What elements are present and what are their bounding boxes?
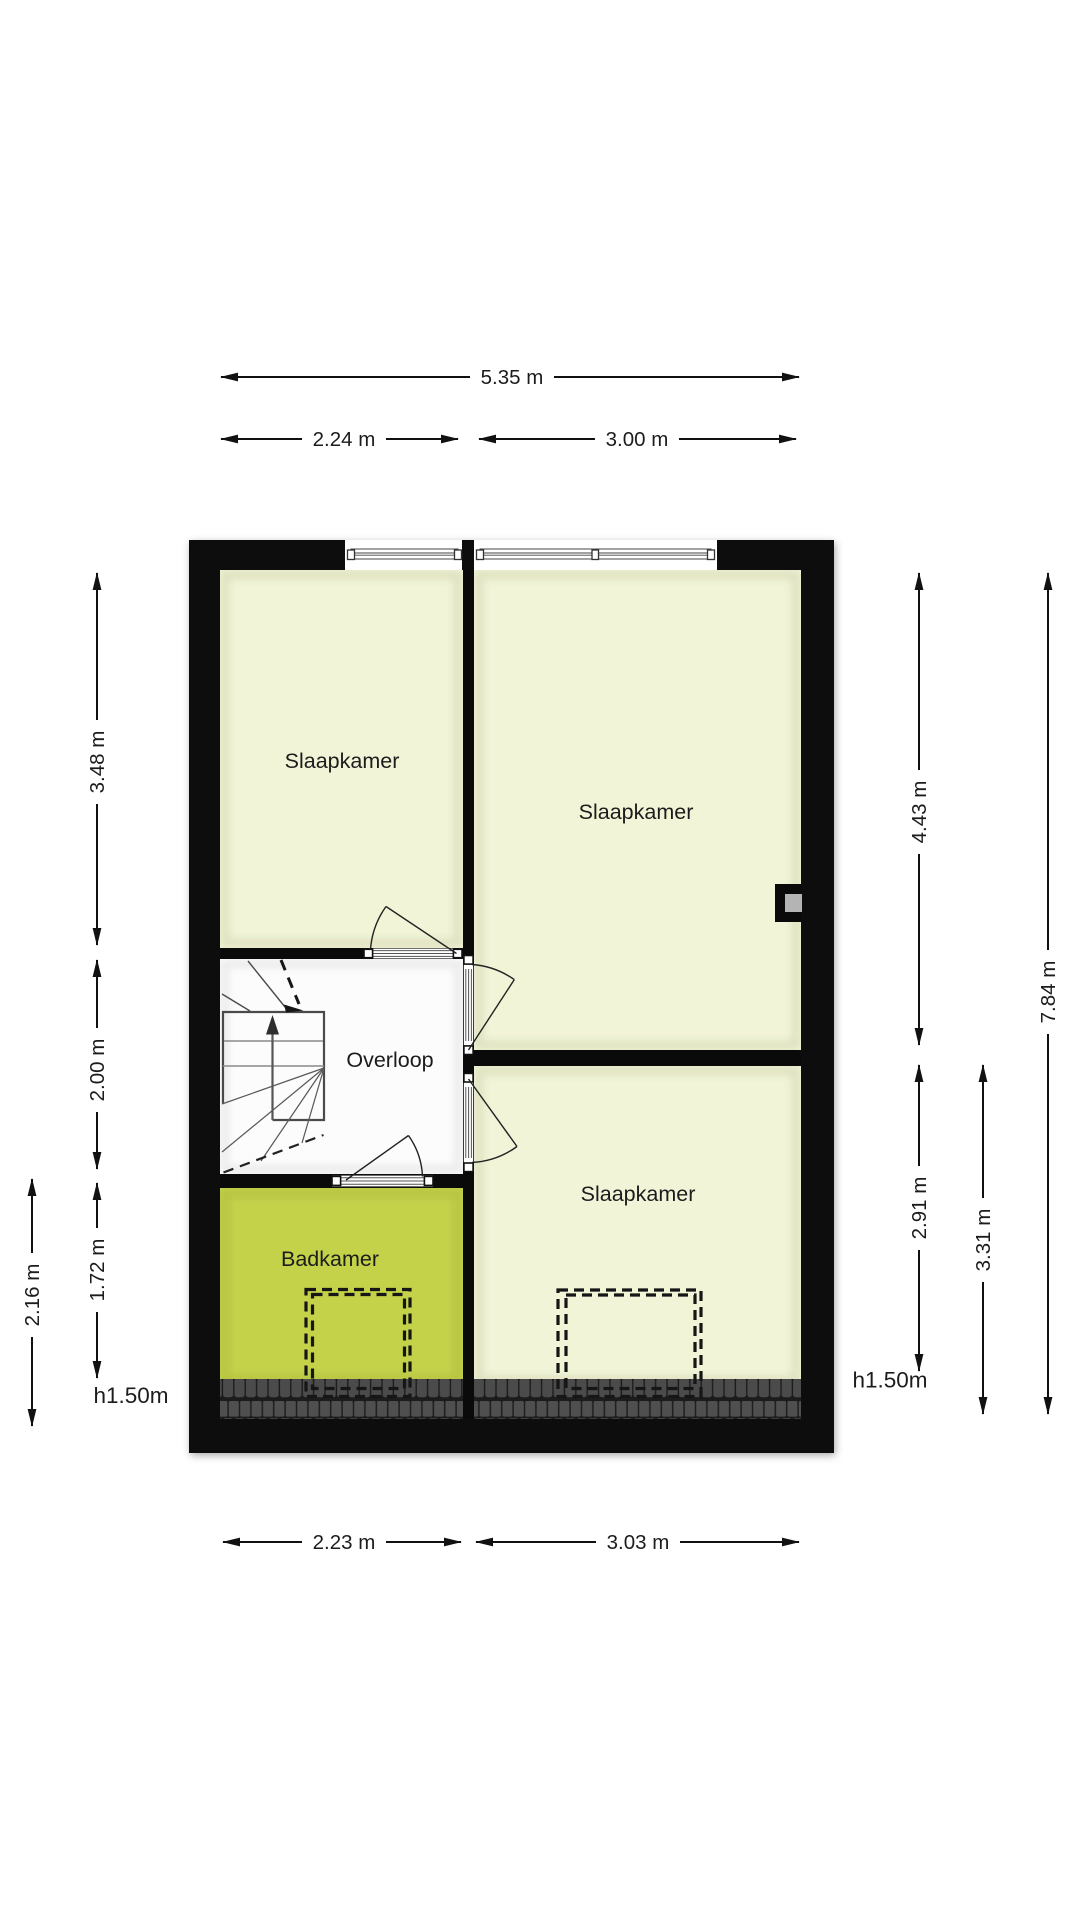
- svg-text:7.84 m: 7.84 m: [1037, 961, 1060, 1024]
- svg-text:2.24 m: 2.24 m: [313, 428, 376, 451]
- svg-text:Badkamer: Badkamer: [281, 1247, 379, 1271]
- svg-text:2.16 m: 2.16 m: [21, 1264, 44, 1327]
- svg-text:Slaapkamer: Slaapkamer: [579, 800, 694, 824]
- svg-text:2.23 m: 2.23 m: [313, 1531, 376, 1554]
- svg-text:3.48 m: 3.48 m: [86, 731, 109, 794]
- svg-text:Slaapkamer: Slaapkamer: [581, 1182, 696, 1206]
- svg-text:3.31 m: 3.31 m: [972, 1209, 995, 1272]
- svg-text:5.35 m: 5.35 m: [481, 366, 544, 389]
- svg-text:2.00 m: 2.00 m: [86, 1039, 109, 1102]
- svg-text:3.00 m: 3.00 m: [606, 428, 669, 451]
- svg-text:Overloop: Overloop: [346, 1048, 433, 1072]
- svg-text:1.72 m: 1.72 m: [86, 1239, 109, 1302]
- svg-text:3.03 m: 3.03 m: [607, 1531, 670, 1554]
- svg-text:2.91 m: 2.91 m: [908, 1177, 931, 1240]
- svg-text:Slaapkamer: Slaapkamer: [285, 749, 400, 773]
- svg-text:4.43 m: 4.43 m: [908, 781, 931, 844]
- svg-text:h1.50m: h1.50m: [93, 1383, 168, 1408]
- svg-text:h1.50m: h1.50m: [852, 1368, 927, 1393]
